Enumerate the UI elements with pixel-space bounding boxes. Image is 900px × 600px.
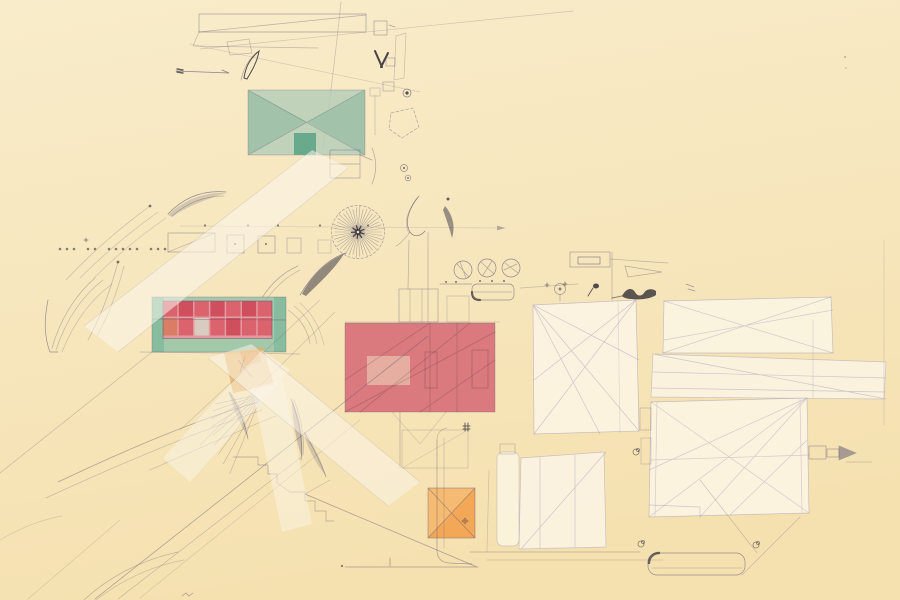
pencil-stroke [407,177,409,179]
brick-cell [179,301,193,317]
pencil-stroke [844,56,846,58]
brick-cell [226,301,240,317]
measure-dot [59,248,62,251]
pencil-stroke [491,280,493,282]
pencil-stroke [265,243,267,245]
measure-dot [367,224,369,226]
brick-cell [163,318,177,336]
sheet-e-strip [497,452,519,546]
measure-dot [115,248,118,251]
measure-dot [66,248,69,251]
brick-cell [258,301,272,317]
architectural-site-plan [0,0,900,600]
pencil-stroke [149,205,152,208]
ink-blob [593,284,599,289]
brick-cell [179,318,193,336]
measure-dot [319,224,321,226]
pencil-stroke [503,280,505,282]
pencil-stroke [117,261,120,264]
brick-cell [242,318,256,336]
brick-grid [163,301,272,336]
brick-cell [242,301,256,317]
measure-dot [164,248,167,251]
measure-dot [87,248,90,251]
pencil-stroke [341,565,343,567]
brick-cell [210,301,224,317]
pencil-stroke [274,297,286,352]
measure-dot [136,248,139,251]
brick-cell [226,318,240,336]
measure-dot [204,224,206,226]
pencil-stroke [479,280,481,282]
pencil-stroke [845,67,847,69]
brick-cell [258,318,272,336]
measure-dot [122,248,125,251]
pencil-stroke [445,281,447,283]
brick-cell [195,318,209,336]
brick-cell [195,301,209,317]
pencil-stroke [559,288,562,291]
pencil-stroke [403,167,405,169]
brick-cell [210,318,224,336]
measure-dot [150,248,153,251]
measure-dot [73,248,76,251]
pencil-stroke [405,91,408,94]
measure-dot [129,248,132,251]
pencil-stroke [455,281,457,283]
measure-dot [157,248,160,251]
site-plan-svg [0,0,900,600]
measure-dot [108,248,111,251]
pencil-stroke [447,198,450,201]
measure-dot [94,248,97,251]
